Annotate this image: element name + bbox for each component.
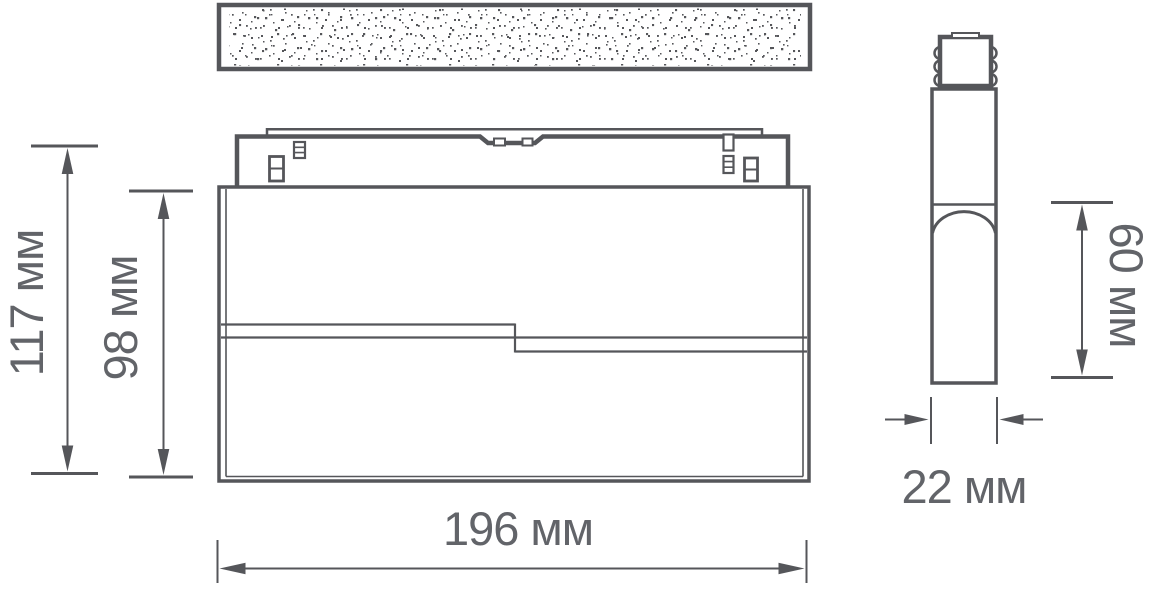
dim-label-depth: 22 мм (874, 459, 1054, 515)
ceiling-track (219, 5, 810, 69)
dim-arrow-down (62, 446, 74, 472)
track-adapter (237, 129, 788, 187)
dim-label-width: 196 мм (418, 501, 618, 557)
dim-arrow-up (62, 148, 74, 174)
dim-label-total-height: 117 мм (0, 218, 55, 388)
extension-line (931, 397, 997, 444)
dim-arrow-left (1000, 414, 1024, 425)
connector (940, 37, 991, 86)
adapter-outline (237, 137, 788, 188)
connector-top-tab (952, 33, 979, 38)
dim-arrow-left (220, 563, 246, 575)
side-body-outline (932, 89, 996, 383)
adapter-notch-slot (494, 139, 505, 146)
dim-arrow-right (905, 414, 929, 425)
technical-drawing: 117 мм 98 мм 60 мм 196 мм 22 мм (0, 0, 1159, 589)
dim-label-lens-height: 60 мм (1098, 210, 1154, 360)
dim-arrow-up (158, 193, 170, 219)
stipple-fill (229, 9, 801, 66)
dim-depth (885, 397, 1043, 444)
dim-label-body-height: 98 мм (93, 243, 149, 393)
fixture-front-view (219, 187, 809, 481)
adapter-notch-slot (523, 139, 533, 146)
dim-arrow-down (158, 449, 170, 475)
side-view (932, 33, 997, 383)
seam-line (221, 324, 807, 353)
dim-arrow-right (779, 563, 805, 575)
dim-arrow-down (1076, 350, 1088, 376)
dim-arrow-up (1076, 205, 1088, 231)
